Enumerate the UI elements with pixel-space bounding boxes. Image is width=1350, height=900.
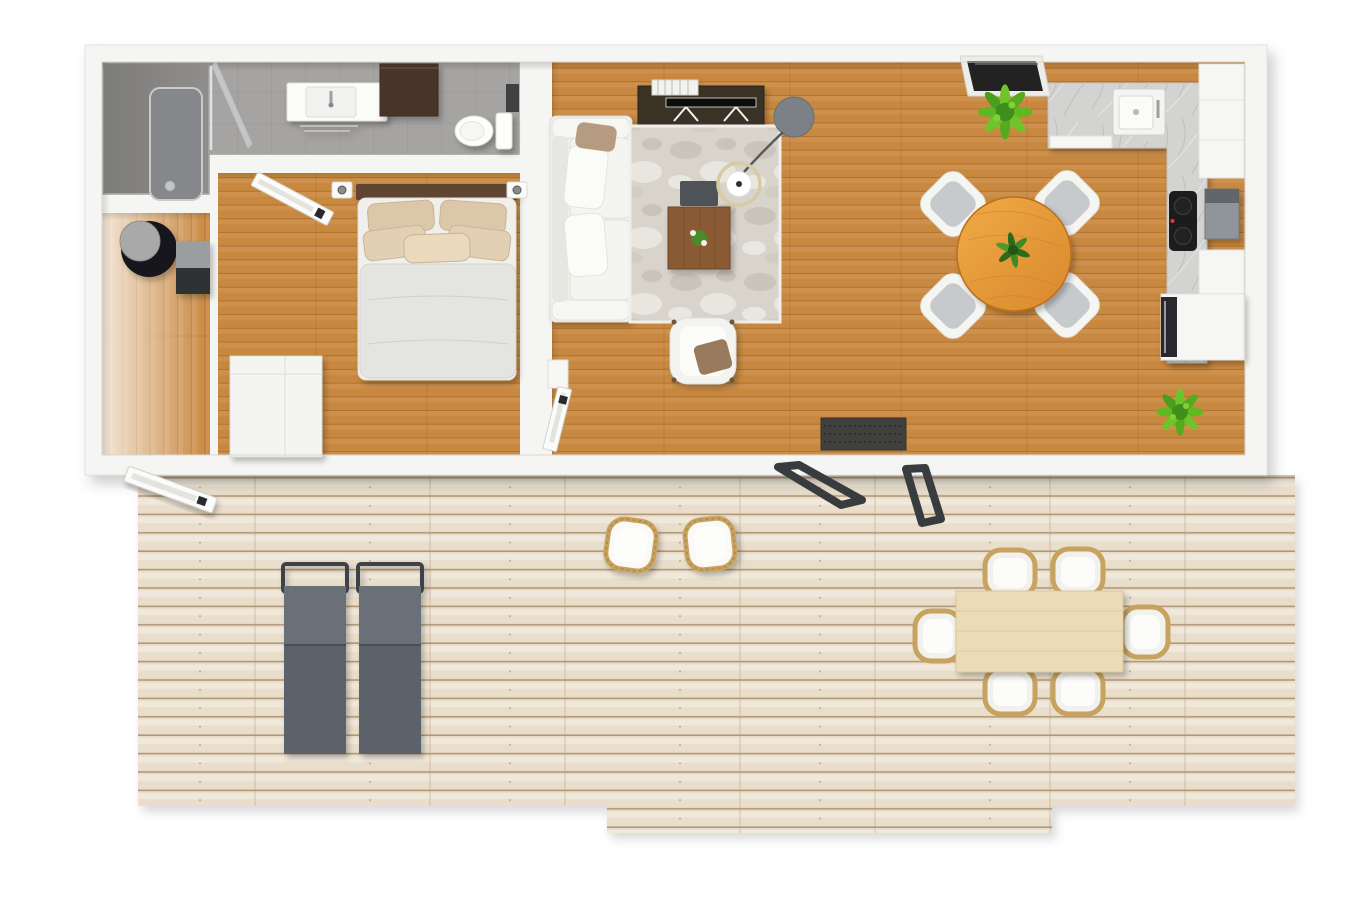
- bistro-chair-right: [684, 517, 737, 572]
- lounger-fabric-upper: [359, 586, 421, 644]
- chair-cushion: [923, 619, 953, 653]
- chair-cushion: [1130, 615, 1160, 649]
- toilet-seat: [460, 122, 484, 141]
- house: [85, 45, 1267, 475]
- bath-wall-cabinet: [380, 64, 438, 116]
- dishwasher-front: [1050, 136, 1112, 148]
- sun-lounger-right: [358, 564, 422, 754]
- boiler-top: [120, 221, 160, 261]
- sun-lounger-left: [283, 564, 347, 754]
- toilet-tank: [496, 113, 512, 149]
- cabinet-dark-box: [380, 64, 438, 116]
- sofa: [550, 116, 632, 322]
- appliance-top: [1205, 189, 1239, 203]
- burner-1: [1175, 198, 1192, 215]
- dark-tray: [680, 181, 718, 206]
- wall-bath-bedroom: [210, 155, 520, 173]
- deck-house-shadow: [138, 475, 1295, 487]
- duvet: [360, 264, 516, 378]
- toilet: [455, 113, 512, 149]
- faucet-spout: [329, 103, 334, 108]
- sofa-back-pillow-1: [563, 144, 609, 210]
- door-jamb-stub: [548, 360, 568, 388]
- floorplan-svg: [0, 0, 1350, 900]
- floor-plant-top: [977, 84, 1032, 139]
- flat-tv: [666, 98, 756, 107]
- shower-tray: [150, 88, 202, 200]
- doormat: [821, 418, 906, 450]
- wall-hallway-bedroom: [210, 173, 218, 455]
- cooktop-indicator: [1171, 219, 1175, 223]
- console-front: [176, 268, 210, 294]
- book-stack: [652, 80, 698, 95]
- wall-bedroom-living: [520, 62, 552, 455]
- sink-drain: [1133, 109, 1139, 115]
- lamp-center: [736, 181, 742, 187]
- tall-cabinet: [1199, 64, 1244, 178]
- burner-2: [1175, 228, 1192, 245]
- wall-sconce-right: [507, 182, 527, 198]
- outdoor-chair-bottom-2: [1053, 668, 1103, 714]
- outdoor-chair-bottom-1: [985, 668, 1035, 714]
- chair-cushion: [692, 525, 727, 562]
- outdoor-chair-top-1: [985, 550, 1035, 596]
- wall-sconce-left: [332, 182, 352, 198]
- chair-cushion: [613, 526, 649, 564]
- doormat-base: [821, 418, 906, 450]
- table-flower-1: [690, 230, 696, 236]
- double-bed: [356, 184, 518, 380]
- floor-plant-bottom: [1156, 388, 1204, 436]
- cooktop: [1169, 191, 1197, 251]
- sofa-armrest-bottom: [552, 300, 630, 320]
- oven-door: [1161, 297, 1177, 357]
- sconce-lamp-icon: [338, 186, 346, 194]
- kitchen-sink: [1113, 89, 1165, 135]
- chair-cushion: [1061, 557, 1095, 587]
- lounger-fabric-upper: [284, 586, 346, 644]
- deck-step-extension: [607, 806, 1052, 833]
- table-flower-2: [701, 240, 707, 246]
- coffee-table: [668, 207, 730, 269]
- cabinet-body: [1199, 64, 1244, 178]
- shower-handheld: [165, 181, 175, 191]
- wardrobe-body: [230, 356, 322, 457]
- mid-cabinet: [1199, 250, 1244, 298]
- sconce-lamp-icon: [513, 186, 521, 194]
- outdoor-dining-table: [956, 591, 1123, 672]
- floorplan-render: [0, 0, 1350, 900]
- tv-console: [638, 80, 764, 130]
- bistro-chair-left: [604, 517, 658, 573]
- chair-cushion: [993, 676, 1027, 706]
- sofa-back-pillow-2: [563, 212, 608, 277]
- sofa-accent-pillow: [574, 121, 617, 152]
- lamp-base-disc: [774, 97, 814, 137]
- wardrobe: [230, 356, 322, 457]
- bath-shelf-dark: [506, 84, 519, 112]
- outdoor-chair-right: [1122, 607, 1168, 657]
- outdoor-chair-left: [915, 611, 961, 661]
- hall-console: [176, 241, 210, 294]
- chair-cushion: [993, 558, 1027, 588]
- chair-cushion: [1061, 676, 1095, 706]
- steel-appliance: [1205, 189, 1239, 239]
- armchair: [670, 318, 736, 384]
- oven-block: [1161, 294, 1244, 360]
- outdoor-chair-top-2: [1053, 549, 1103, 595]
